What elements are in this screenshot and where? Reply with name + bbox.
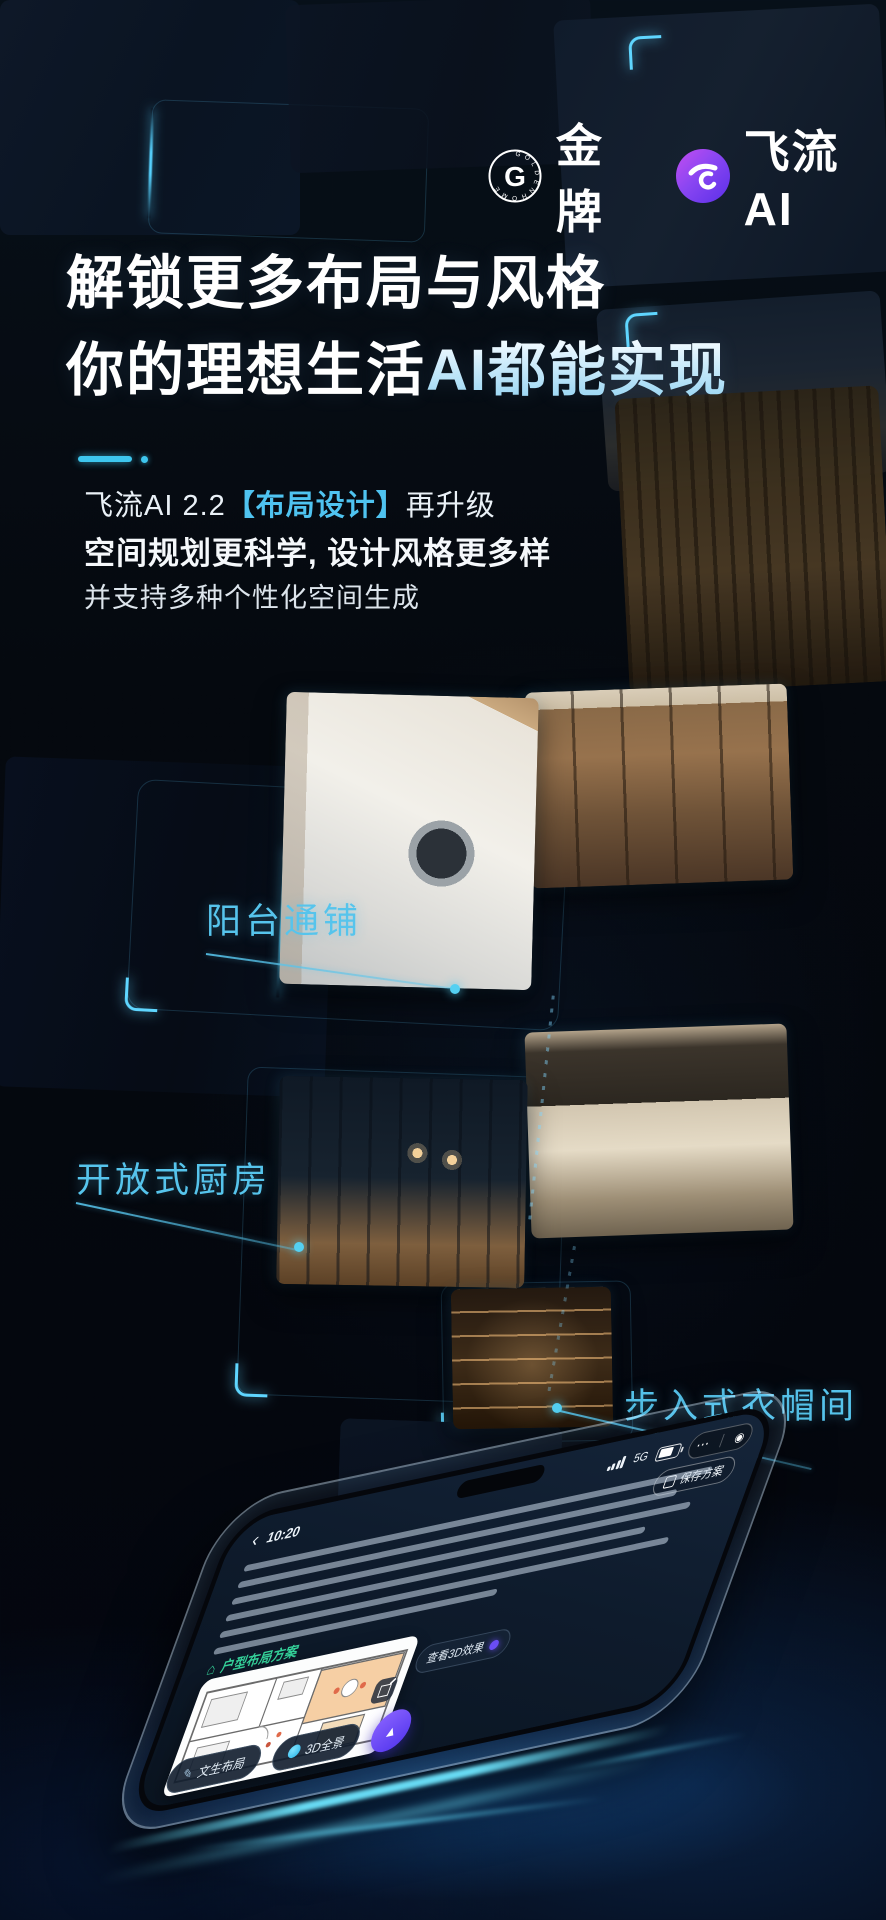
intro-line1-accent: 【布局设计】 [226,490,406,522]
house-icon: ⌂ [205,1658,220,1677]
pen-icon: ✎ [180,1765,195,1783]
miniapp-capsule[interactable]: ⋯ ◉ [684,1421,756,1461]
battery-icon [654,1442,683,1461]
intro-line1-suffix: 再升级 [406,490,496,522]
panorama-icon [286,1743,303,1759]
feiliu-brand-name: 飞流AI [744,116,886,236]
goldmedal-brand-name: 金牌 [556,110,650,242]
photo-balcony-laundry [279,692,539,990]
feature-label-kitchen: 开放式厨房 [76,1152,271,1203]
glow-bracket [234,1363,268,1397]
intro-line1: 飞流AI 2.2【布局设计】再升级 [84,492,551,521]
headline-line2: 你的理想生活AI都能实现 [66,327,728,414]
glow-bracket [628,35,663,70]
photo-bathroom-vanity [524,1023,793,1238]
status-time: 10:20 [264,1522,303,1546]
intro-line3: 并支持多种个性化空间生成 [84,585,551,612]
capsule-home-icon[interactable]: ◉ [732,1429,747,1445]
chip-text-layout-label: 文生布局 [195,1752,249,1781]
view-3d-label: 查看3D效果 [424,1638,487,1668]
feature-label-balcony: 阳台通铺 [206,893,362,944]
headline-line1: 解锁更多布局与风格 [66,240,728,327]
headline: 解锁更多布局与风格 你的理想生活AI都能实现 [66,240,728,414]
leader-dot-kitchen [294,1242,304,1252]
phone-mockup: ‹ 10:20 5G ⋯ ◉ 保存方案 [62,1432,842,1912]
leader-dot-balcony [450,984,460,994]
bg-room-panel-right-wood [614,385,886,694]
headline-divider-dot [141,456,148,463]
photo-walkin-closet-large [525,683,794,888]
poster-root: GOLDENHOME G 金牌 飞流AI 解锁更多布局与风格 你的理想生活AI都… [0,0,886,1920]
svg-text:G: G [504,161,526,192]
leader-dot-closet [552,1403,562,1413]
photo-open-kitchen [276,1076,528,1288]
headline-line2-plain: 你的理想生活 [66,338,426,403]
glow-bracket [124,977,159,1012]
more-icon[interactable]: ⋯ [693,1434,712,1454]
send-icon: ▲ [382,1721,401,1740]
phone-body: ‹ 10:20 5G ⋯ ◉ 保存方案 [125,1401,782,1819]
brand-logos: GOLDENHOME G 金牌 飞流AI [488,110,886,242]
back-chevron-icon[interactable]: ‹ [250,1532,261,1547]
intro-line1-prefix: 飞流AI 2.2 [84,490,226,522]
photo-walkin-closet-small [451,1287,613,1430]
view-3d-pill[interactable]: 查看3D效果 [411,1627,514,1676]
intro-line2: 空间规划更科学, 设计风格更多样 [84,538,551,569]
expand-icon [377,1683,392,1697]
signal-icon [606,1455,627,1471]
feiliu-logo-icon [676,149,730,203]
headline-divider-dash [78,456,132,462]
network-label: 5G [631,1450,650,1466]
goldmedal-logo-icon: GOLDENHOME G [488,149,542,203]
intro-copy: 飞流AI 2.2【布局设计】再升级 空间规划更科学, 设计风格更多样 并支持多种… [84,492,551,612]
purple-dot-icon [488,1638,500,1650]
chip-3d-panorama-label: 3D全景 [303,1731,348,1758]
headline-line2-accent: AI都能实现 [426,338,728,403]
